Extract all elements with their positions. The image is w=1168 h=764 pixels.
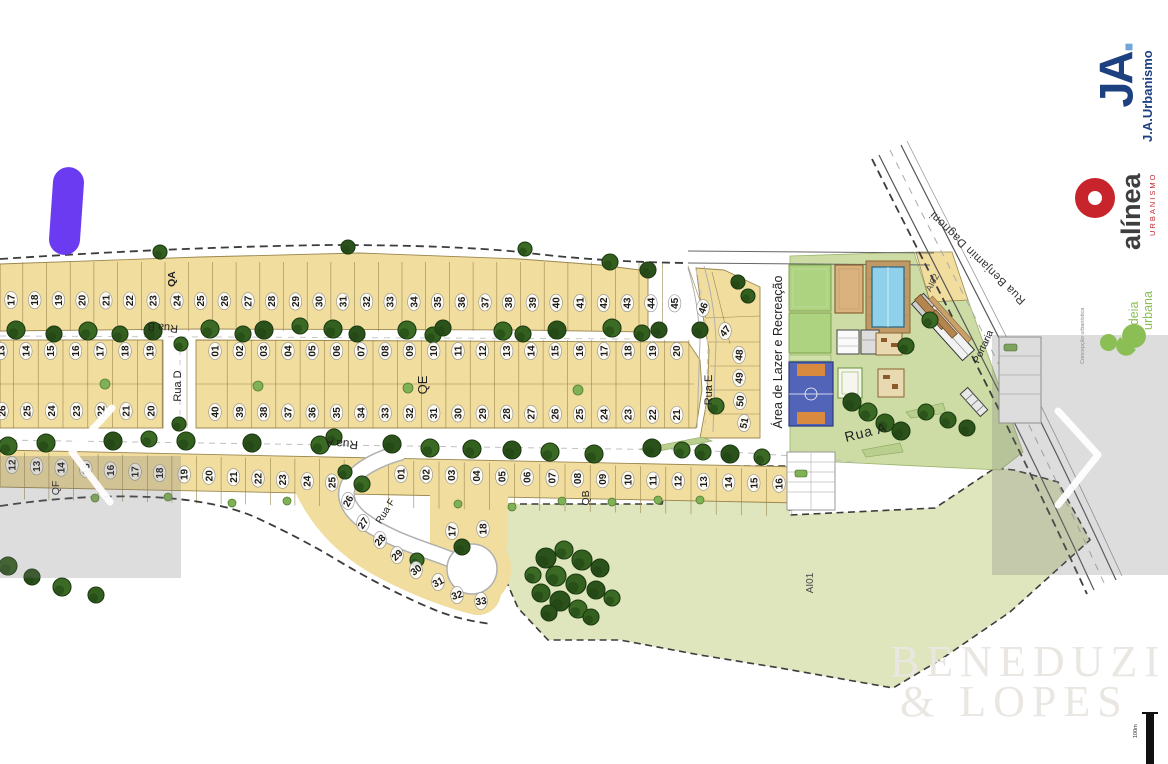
svg-text:41: 41 bbox=[575, 297, 586, 309]
lot-number: 34 bbox=[408, 293, 421, 310]
svg-text:20: 20 bbox=[78, 294, 89, 306]
svg-text:30: 30 bbox=[315, 296, 326, 308]
svg-text:32: 32 bbox=[405, 407, 416, 419]
lot-number: 20 bbox=[76, 292, 89, 309]
next-chevron-icon[interactable] bbox=[1048, 403, 1110, 513]
lot-number: 28 bbox=[265, 293, 278, 310]
lot-number: 33 bbox=[384, 293, 397, 310]
svg-text:18: 18 bbox=[30, 294, 41, 306]
svg-text:25: 25 bbox=[196, 295, 207, 307]
lot-number: 34 bbox=[355, 404, 368, 421]
lot-number: 09 bbox=[403, 342, 416, 359]
svg-text:29: 29 bbox=[478, 408, 489, 420]
alinea-logo-icon bbox=[1075, 178, 1115, 218]
lot-number: 15 bbox=[44, 342, 57, 359]
lot-number: 18 bbox=[622, 342, 635, 359]
svg-text:08: 08 bbox=[381, 345, 392, 357]
svg-text:14: 14 bbox=[724, 476, 735, 488]
svg-text:06: 06 bbox=[523, 471, 534, 483]
lot-number: 11 bbox=[452, 342, 465, 359]
svg-text:23: 23 bbox=[278, 474, 289, 486]
svg-text:23: 23 bbox=[624, 409, 635, 421]
lot-number: 19 bbox=[646, 342, 659, 359]
lot-number: 33 bbox=[379, 404, 392, 421]
label-block-qb: QB bbox=[580, 490, 592, 505]
svg-text:13: 13 bbox=[0, 345, 8, 357]
svg-text:15: 15 bbox=[749, 477, 760, 489]
lot-number: 16 bbox=[69, 342, 82, 359]
label-rua-e: Rua E bbox=[703, 375, 715, 406]
svg-text:07: 07 bbox=[356, 345, 367, 357]
svg-text:14: 14 bbox=[526, 345, 537, 357]
lot-number: 14 bbox=[525, 342, 538, 359]
svg-text:23: 23 bbox=[149, 295, 160, 307]
swimming-pool bbox=[866, 261, 910, 333]
lot-number: 25 bbox=[21, 402, 34, 419]
lot-number: 32 bbox=[360, 293, 373, 310]
lot-number: 22 bbox=[252, 470, 265, 487]
svg-text:08: 08 bbox=[573, 473, 584, 485]
lot-number: 05 bbox=[496, 468, 509, 485]
lot-number: 40 bbox=[550, 294, 563, 311]
svg-text:17: 17 bbox=[448, 525, 459, 537]
svg-text:19: 19 bbox=[145, 345, 156, 357]
lot-number: 02 bbox=[233, 342, 246, 359]
svg-text:17: 17 bbox=[96, 345, 107, 357]
lot-number: 01 bbox=[395, 465, 408, 482]
lot-number: 22 bbox=[123, 292, 136, 309]
lot-number: 35 bbox=[330, 404, 343, 421]
svg-text:28: 28 bbox=[267, 295, 278, 307]
lot-number: 31 bbox=[337, 293, 350, 310]
lot-number: 38 bbox=[502, 294, 515, 311]
svg-text:42: 42 bbox=[599, 297, 610, 309]
svg-text:40: 40 bbox=[211, 406, 222, 418]
svg-text:19: 19 bbox=[648, 345, 659, 357]
svg-text:16: 16 bbox=[575, 345, 586, 357]
svg-text:30: 30 bbox=[454, 408, 465, 420]
lot-number: 21 bbox=[100, 292, 113, 309]
lot-number: 21 bbox=[670, 406, 683, 423]
svg-text:21: 21 bbox=[101, 294, 112, 306]
svg-text:27: 27 bbox=[526, 408, 537, 420]
lot-number: 27 bbox=[242, 293, 255, 310]
label-area-lazer: Área de Lazer e Recreação bbox=[770, 276, 785, 429]
alinea-tagline: URBANISMO bbox=[1148, 176, 1157, 236]
lot-number: 04 bbox=[470, 467, 483, 484]
lot-number: 03 bbox=[445, 467, 458, 484]
lot-number: 07 bbox=[546, 469, 559, 486]
svg-text:35: 35 bbox=[332, 407, 343, 419]
lot-number: 02 bbox=[420, 466, 433, 483]
block-qa bbox=[0, 253, 648, 332]
lot-number: 43 bbox=[621, 295, 634, 312]
lot-number: 36 bbox=[455, 294, 468, 311]
lot-number: 20 bbox=[203, 467, 216, 484]
svg-text:36: 36 bbox=[457, 296, 468, 308]
lot-number: 24 bbox=[598, 406, 611, 423]
svg-text:24: 24 bbox=[47, 405, 58, 417]
lot-number: 12 bbox=[672, 473, 685, 490]
svg-text:13: 13 bbox=[699, 476, 710, 488]
lot-number: 37 bbox=[479, 294, 492, 311]
label-block-qa: QA bbox=[166, 271, 178, 287]
lot-number: 41 bbox=[574, 294, 587, 311]
lot-number: 25 bbox=[573, 406, 586, 423]
svg-text:34: 34 bbox=[409, 296, 420, 308]
svg-text:22: 22 bbox=[125, 295, 136, 307]
lot-number: 06 bbox=[521, 469, 534, 486]
svg-text:18: 18 bbox=[121, 345, 132, 357]
lot-number: 45 bbox=[668, 295, 681, 312]
svg-text:15: 15 bbox=[551, 345, 562, 357]
playground-2 bbox=[878, 369, 904, 397]
svg-text:19: 19 bbox=[180, 468, 191, 480]
svg-text:10: 10 bbox=[623, 474, 634, 486]
lot-number: 17 bbox=[5, 291, 18, 308]
svg-text:39: 39 bbox=[235, 406, 246, 418]
alinea-name: alínea bbox=[1116, 150, 1147, 250]
svg-text:12: 12 bbox=[674, 475, 685, 487]
ja-urbanismo-logo-icon: JA. bbox=[1087, 34, 1145, 116]
lot-number: 15 bbox=[549, 342, 562, 359]
lot-number: 39 bbox=[526, 294, 539, 311]
svg-text:25: 25 bbox=[327, 477, 338, 489]
svg-text:12: 12 bbox=[478, 345, 489, 357]
svg-text:24: 24 bbox=[172, 295, 183, 307]
svg-text:38: 38 bbox=[259, 406, 270, 418]
lot-number: 25 bbox=[194, 292, 207, 309]
lot-number: 30 bbox=[452, 405, 465, 422]
svg-text:33: 33 bbox=[381, 407, 392, 419]
culdesac-bulb bbox=[447, 544, 497, 594]
lot-number: 26 bbox=[218, 292, 231, 309]
svg-text:31: 31 bbox=[338, 296, 349, 308]
lot-number: 23 bbox=[147, 292, 160, 309]
svg-text:26: 26 bbox=[551, 408, 562, 420]
lot-number: 44 bbox=[645, 295, 658, 312]
svg-text:19: 19 bbox=[54, 294, 65, 306]
ideia-urbana-name-line2: urbana bbox=[1141, 260, 1155, 330]
purple-marker-blob bbox=[48, 166, 85, 256]
svg-text:33: 33 bbox=[386, 296, 397, 308]
svg-text:26: 26 bbox=[0, 405, 9, 417]
svg-text:02: 02 bbox=[422, 469, 433, 481]
svg-text:22: 22 bbox=[648, 409, 659, 421]
svg-text:22: 22 bbox=[254, 473, 265, 485]
lot-number: 25 bbox=[326, 474, 339, 491]
lot-number: 32 bbox=[403, 405, 416, 422]
lot-number: 29 bbox=[476, 405, 489, 422]
lot-number: 14 bbox=[20, 342, 33, 359]
lot-number: 38 bbox=[257, 404, 270, 421]
svg-text:04: 04 bbox=[283, 345, 294, 357]
svg-text:27: 27 bbox=[244, 295, 255, 307]
svg-text:17: 17 bbox=[599, 345, 610, 357]
svg-text:32: 32 bbox=[362, 296, 373, 308]
prev-chevron-icon[interactable] bbox=[60, 400, 120, 510]
scale-bar-cap bbox=[1142, 712, 1158, 714]
lot-number: 42 bbox=[597, 294, 610, 311]
lot-number: 24 bbox=[45, 402, 58, 419]
svg-text:39: 39 bbox=[528, 297, 539, 309]
svg-text:15: 15 bbox=[46, 345, 57, 357]
svg-text:20: 20 bbox=[146, 405, 157, 417]
svg-text:26: 26 bbox=[220, 295, 231, 307]
svg-text:11: 11 bbox=[649, 475, 660, 486]
lot-number: 24 bbox=[171, 292, 184, 309]
svg-text:33: 33 bbox=[475, 596, 488, 609]
svg-text:44: 44 bbox=[646, 297, 657, 309]
lot-number: 13 bbox=[500, 342, 513, 359]
svg-text:36: 36 bbox=[308, 407, 319, 419]
lot-number: 17 bbox=[446, 522, 459, 539]
lot-number: 19 bbox=[52, 292, 65, 309]
label-rua-a-left: Rua A bbox=[325, 436, 359, 452]
lot-number: 31 bbox=[427, 405, 440, 422]
lot-number: 23 bbox=[276, 471, 289, 488]
scale-label: 100m bbox=[1133, 714, 1139, 738]
lot-number: 29 bbox=[289, 293, 302, 310]
lot-number: 16 bbox=[773, 475, 786, 492]
svg-text:06: 06 bbox=[332, 345, 343, 357]
watermark-line2: & LOPES bbox=[900, 682, 1168, 722]
label-rua-d: Rua D bbox=[172, 370, 184, 401]
lot-number: 35 bbox=[431, 294, 444, 311]
lot-number: 08 bbox=[571, 470, 584, 487]
svg-text:02: 02 bbox=[235, 345, 246, 357]
svg-text:35: 35 bbox=[433, 296, 444, 308]
scale-bar bbox=[1146, 712, 1154, 764]
lot-number: 15 bbox=[748, 475, 761, 492]
credit-text: Concepção urbanística bbox=[1080, 300, 1086, 364]
svg-text:09: 09 bbox=[598, 473, 609, 485]
lot-number: 24 bbox=[301, 473, 314, 490]
svg-text:10: 10 bbox=[429, 345, 440, 357]
ja-urbanismo-name: J.A.Urbanismo bbox=[1140, 20, 1155, 142]
lot-number: 10 bbox=[622, 471, 635, 488]
svg-text:43: 43 bbox=[623, 297, 634, 309]
svg-text:05: 05 bbox=[497, 471, 508, 483]
watermark-line1: BENEDUZI bbox=[890, 642, 1168, 682]
svg-text:16: 16 bbox=[775, 478, 786, 490]
label-ai01: AI01 bbox=[805, 572, 816, 593]
lot-number: 40 bbox=[209, 403, 222, 420]
svg-text:21: 21 bbox=[122, 405, 133, 417]
svg-text:09: 09 bbox=[405, 345, 416, 357]
lot-number: 30 bbox=[313, 293, 326, 310]
lot-number: 17 bbox=[598, 342, 611, 359]
sand-court bbox=[835, 265, 863, 313]
lot-number: 10 bbox=[427, 342, 440, 359]
svg-text:01: 01 bbox=[211, 345, 222, 357]
svg-text:18: 18 bbox=[624, 345, 635, 357]
lot-number: 16 bbox=[573, 342, 586, 359]
lot-number: 36 bbox=[306, 404, 319, 421]
svg-text:16: 16 bbox=[71, 345, 82, 357]
lot-number: 28 bbox=[500, 405, 513, 422]
svg-text:20: 20 bbox=[672, 345, 683, 357]
sports-field-1 bbox=[789, 265, 831, 311]
svg-text:37: 37 bbox=[481, 296, 492, 308]
ideia-urbana-logo-icon bbox=[1100, 334, 1117, 351]
lot-number: 37 bbox=[282, 404, 295, 421]
lot-number: 13 bbox=[697, 473, 710, 490]
svg-text:21: 21 bbox=[672, 409, 683, 421]
svg-text:04: 04 bbox=[472, 470, 483, 482]
svg-text:50: 50 bbox=[735, 395, 747, 407]
svg-text:34: 34 bbox=[356, 407, 367, 419]
svg-text:13: 13 bbox=[502, 345, 513, 357]
lot-number: 18 bbox=[28, 292, 41, 309]
lot-number: 39 bbox=[233, 404, 246, 421]
lot-number: 22 bbox=[646, 406, 659, 423]
lot-number: 04 bbox=[282, 342, 295, 359]
site-plan-viewer: Rua B Rua D Rua E Rua A Rua A Rua F Rua … bbox=[0, 0, 1168, 764]
lot-number: 20 bbox=[670, 342, 683, 359]
svg-text:03: 03 bbox=[447, 469, 458, 481]
svg-text:11: 11 bbox=[454, 345, 465, 356]
lot-number: 18 bbox=[477, 520, 490, 537]
svg-text:21: 21 bbox=[229, 471, 240, 483]
svg-text:03: 03 bbox=[259, 345, 270, 357]
svg-text:48: 48 bbox=[734, 349, 746, 361]
lot-number: 09 bbox=[596, 471, 609, 488]
svg-text:24: 24 bbox=[599, 408, 610, 420]
svg-text:38: 38 bbox=[504, 297, 515, 309]
svg-text:20: 20 bbox=[204, 470, 215, 482]
svg-text:25: 25 bbox=[22, 405, 33, 417]
ideia-urbana-name-line1: ideia bbox=[1127, 266, 1141, 328]
svg-text:18: 18 bbox=[479, 523, 490, 535]
lot-number: 12 bbox=[476, 342, 489, 359]
svg-text:28: 28 bbox=[502, 408, 513, 420]
svg-text:17: 17 bbox=[7, 294, 18, 306]
lot-number: 23 bbox=[622, 406, 635, 423]
lot-number: 27 bbox=[525, 405, 538, 422]
lot-number: 07 bbox=[355, 342, 368, 359]
lot-number: 21 bbox=[227, 469, 240, 486]
lot-number: 26 bbox=[549, 406, 562, 423]
svg-text:31: 31 bbox=[429, 407, 440, 419]
svg-text:25: 25 bbox=[575, 408, 586, 420]
watermark: BENEDUZI & LOPES bbox=[890, 642, 1168, 723]
lot-number: 19 bbox=[144, 342, 157, 359]
lot-number: 14 bbox=[722, 474, 735, 491]
basketball-court bbox=[789, 362, 833, 426]
lot-number: 08 bbox=[379, 342, 392, 359]
svg-text:45: 45 bbox=[670, 297, 681, 309]
svg-text:40: 40 bbox=[552, 297, 563, 309]
svg-text:05: 05 bbox=[308, 345, 319, 357]
svg-text:37: 37 bbox=[283, 406, 294, 418]
clubhouse-buildings bbox=[837, 330, 879, 354]
lot-number: 17 bbox=[94, 342, 107, 359]
svg-text:14: 14 bbox=[21, 345, 32, 357]
lot-number: 05 bbox=[306, 342, 319, 359]
svg-text:01: 01 bbox=[397, 468, 408, 480]
lot-number: 01 bbox=[209, 342, 222, 359]
svg-text:29: 29 bbox=[291, 295, 302, 307]
lot-number: 11 bbox=[647, 472, 660, 489]
lot-number: 18 bbox=[119, 342, 132, 359]
lot-number: 20 bbox=[145, 402, 158, 419]
lot-number: 21 bbox=[120, 402, 133, 419]
svg-text:07: 07 bbox=[548, 472, 559, 484]
svg-text:49: 49 bbox=[734, 372, 746, 384]
label-block-qe: QE bbox=[415, 375, 430, 394]
lot-number: 03 bbox=[257, 342, 270, 359]
svg-text:24: 24 bbox=[303, 475, 314, 487]
lot-number: 06 bbox=[330, 342, 343, 359]
label-rua-f: Rua F bbox=[374, 497, 398, 526]
